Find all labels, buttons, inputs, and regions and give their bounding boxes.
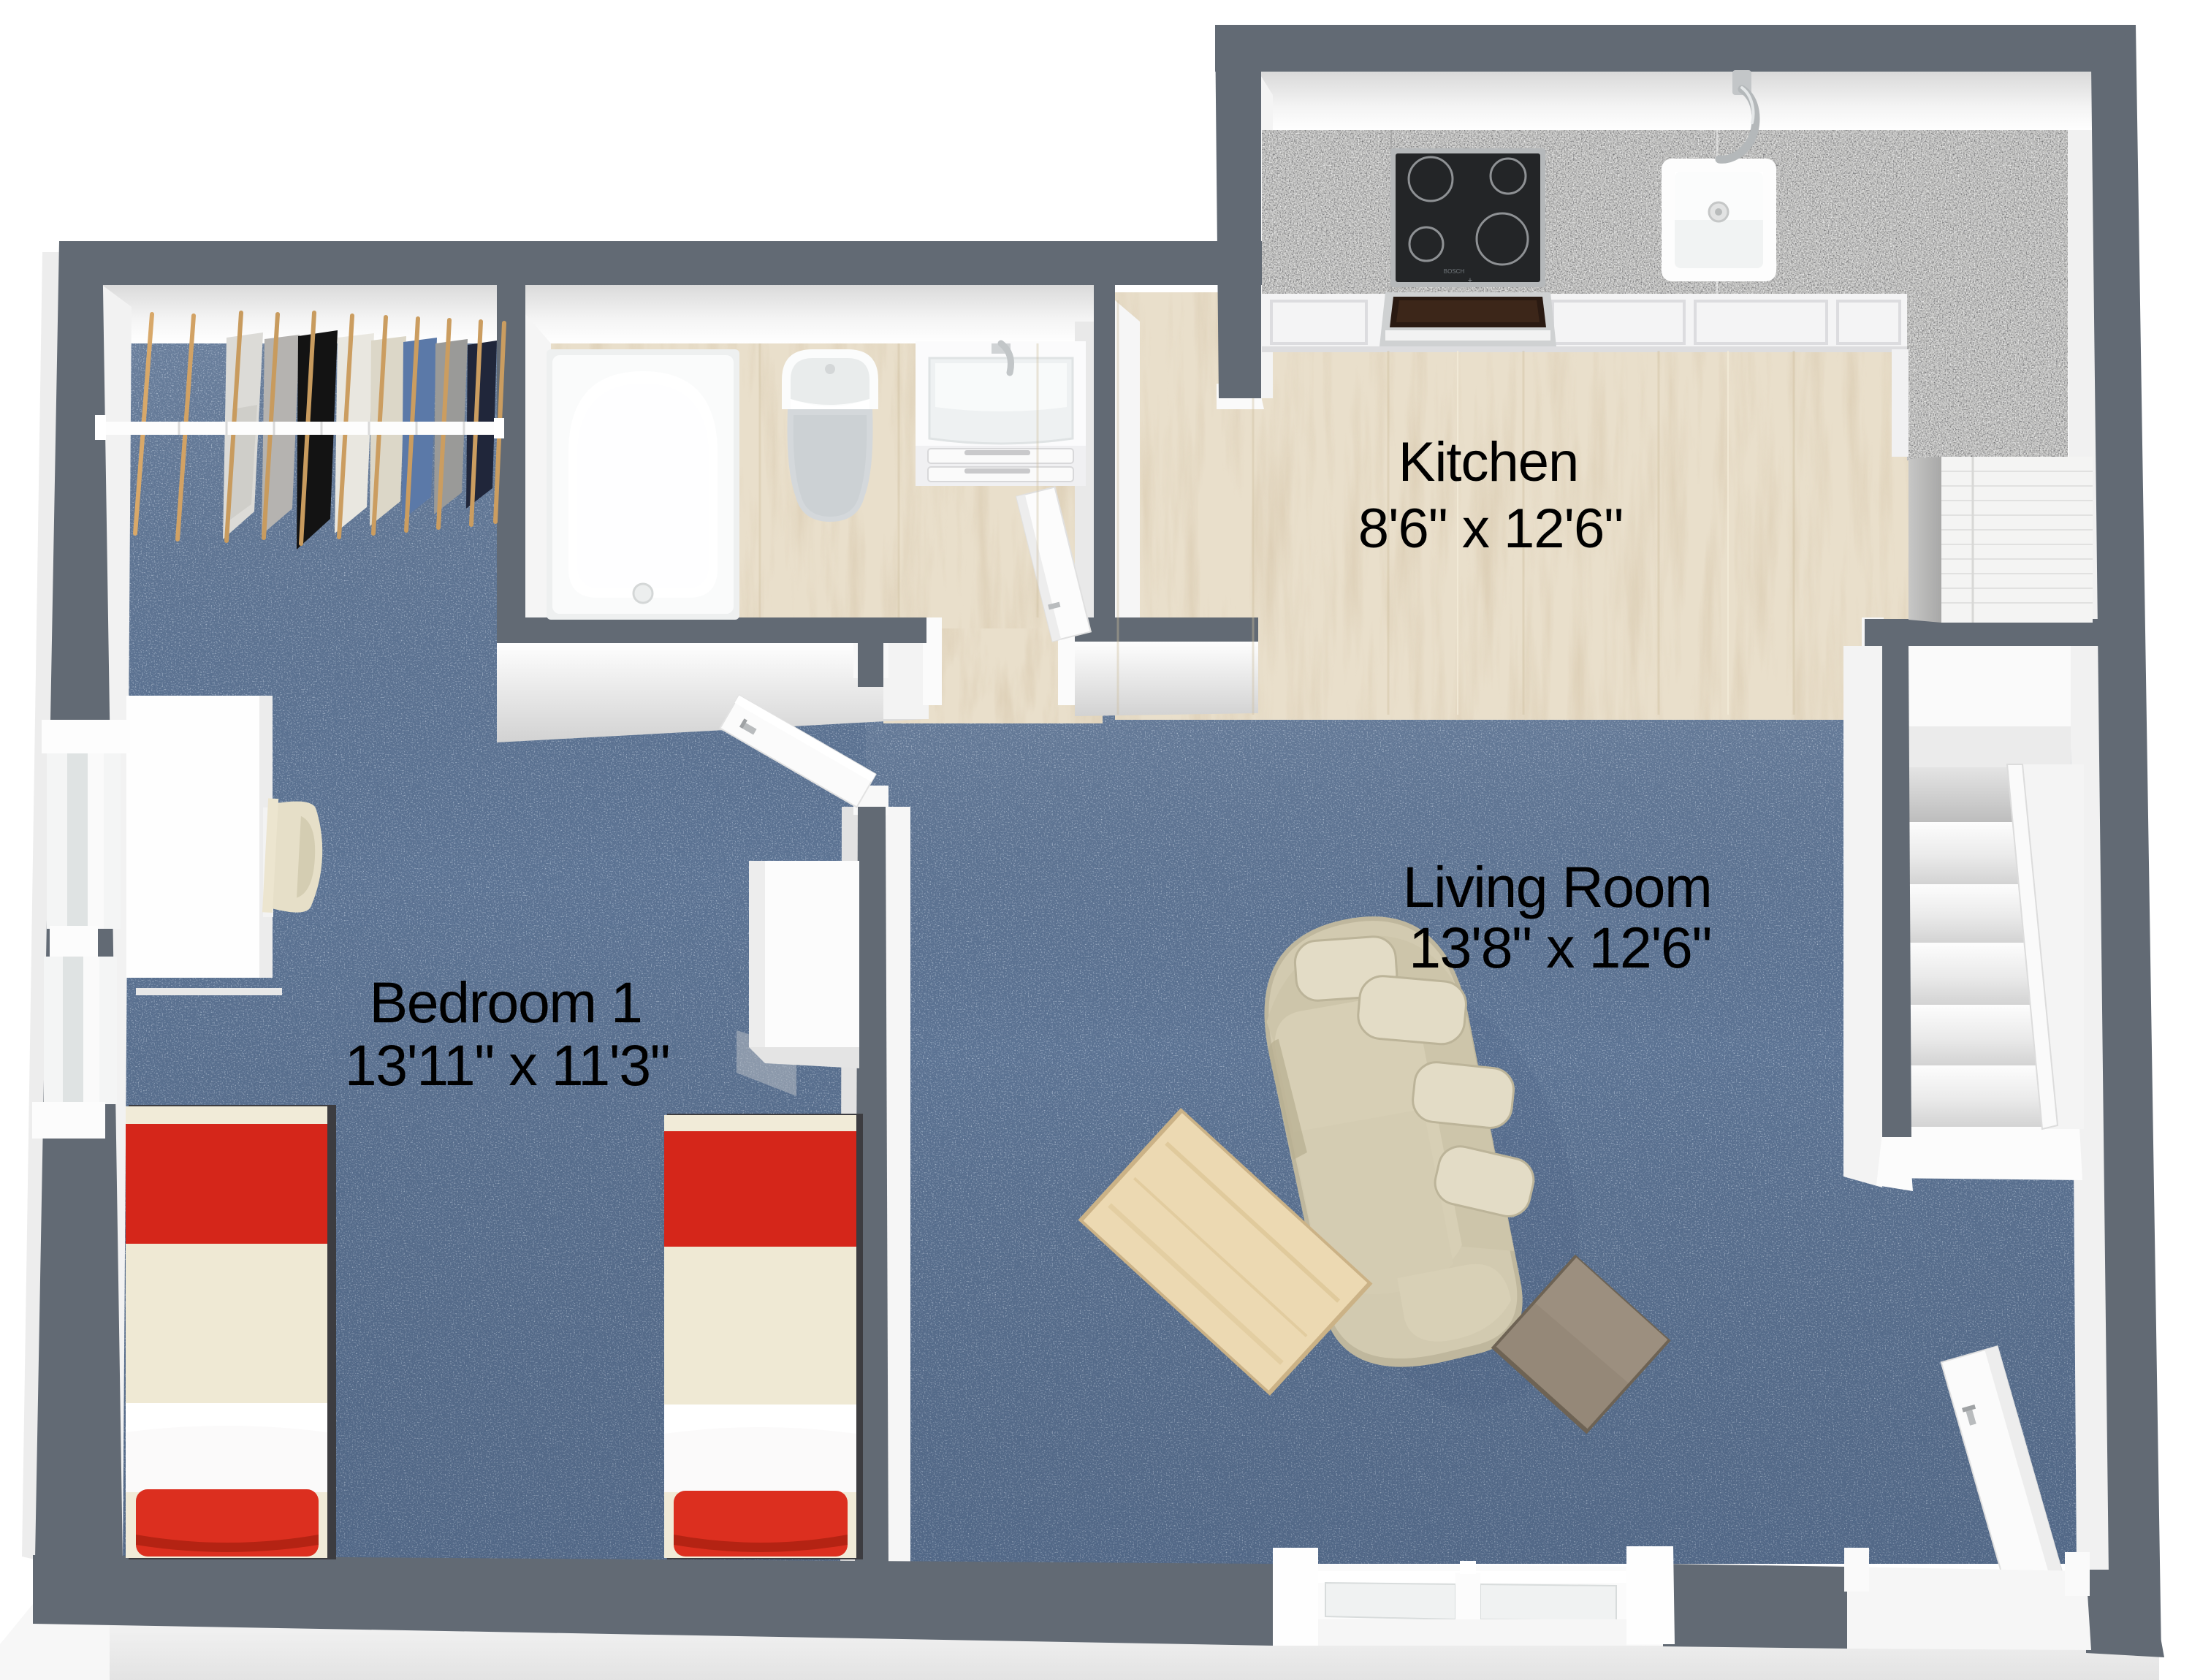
svg-text:13'8" x 12'6": 13'8" x 12'6" xyxy=(1409,915,1711,980)
svg-text:Bedroom 1: Bedroom 1 xyxy=(370,970,642,1035)
svg-text:Kitchen: Kitchen xyxy=(1398,431,1579,493)
svg-text:BOSCH: BOSCH xyxy=(1444,268,1465,275)
svg-text:8'6" x 12'6": 8'6" x 12'6" xyxy=(1358,498,1624,560)
svg-text:Living Room: Living Room xyxy=(1403,854,1712,919)
svg-text:+: + xyxy=(1468,276,1472,285)
svg-text:13'11" x 11'3": 13'11" x 11'3" xyxy=(345,1033,669,1098)
